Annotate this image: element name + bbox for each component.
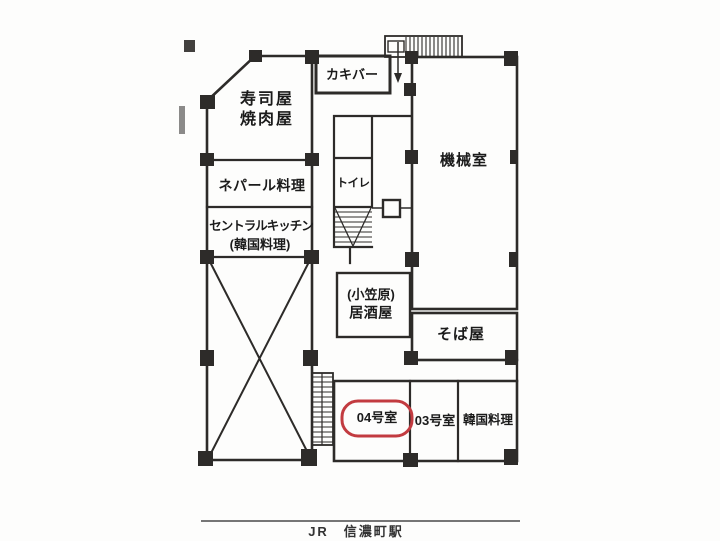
label-yakiniku: 焼肉屋: [240, 111, 294, 129]
label-sushi: 寿司屋: [240, 91, 294, 109]
label-kaki-bar: カキバー: [326, 68, 378, 82]
label-central-kitchen: セントラルキッチン: [209, 220, 313, 234]
label-machine-room: 機械室: [440, 153, 488, 170]
label-station: JR 信濃町駅: [308, 525, 404, 539]
label-room-03: 03号室: [415, 414, 455, 428]
bottom-staircase: [312, 373, 333, 445]
scan-marks: [179, 40, 195, 134]
label-korean-restaurant: 韓国料理: [463, 414, 513, 428]
top-staircase: [385, 36, 462, 83]
machine-room: [412, 57, 517, 309]
label-izakaya-ogasawara: (小笠原): [347, 288, 395, 302]
floor-plan: 寿司屋 焼肉屋 ネパール料理 セントラルキッチン (韓国料理) カキバー トイレ…: [0, 0, 720, 541]
label-soba: そば屋: [437, 327, 485, 344]
label-toilet: トイレ: [337, 178, 370, 191]
elevator: [383, 200, 400, 217]
vacant-room-cross: [208, 258, 311, 459]
label-central-kitchen-korean: (韓国料理): [230, 238, 291, 252]
label-nepal: ネパール料理: [219, 178, 306, 193]
entrance-arrow-head: [394, 73, 402, 83]
label-room-04: 04号室: [357, 411, 397, 425]
label-izakaya: 居酒屋: [349, 305, 393, 320]
